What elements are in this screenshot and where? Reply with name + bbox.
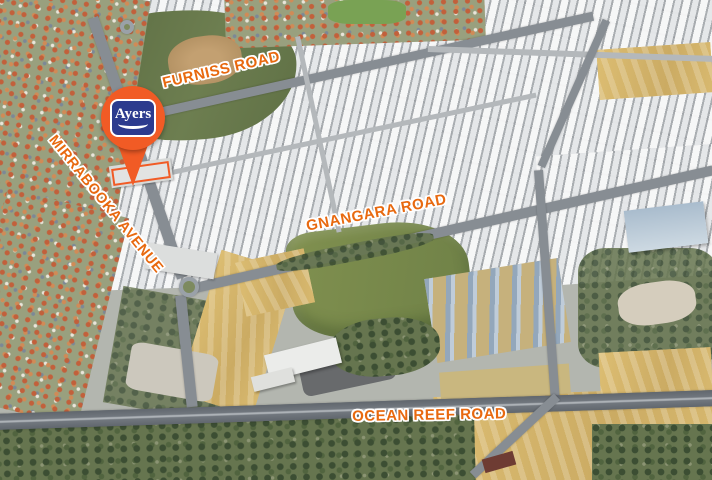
sports-field [328,0,406,24]
roundabout-top-left [120,20,134,34]
roundabout-mirrabooka [179,277,199,297]
aerial-map-image: FURNISS ROAD MIRRABOOKA AVENUE GNANGARA … [0,0,712,480]
sand-lot-top-right [596,42,712,100]
ayers-logo-text: Ayers [115,107,151,122]
road-label-ocean-reef: OCEAN REEF ROAD [352,406,506,424]
pin-head: Ayers [101,86,165,150]
ayers-logo-swoosh-icon [118,123,148,129]
ayers-logo: Ayers [110,99,156,137]
bushland-bottom-right-corner [592,424,712,480]
